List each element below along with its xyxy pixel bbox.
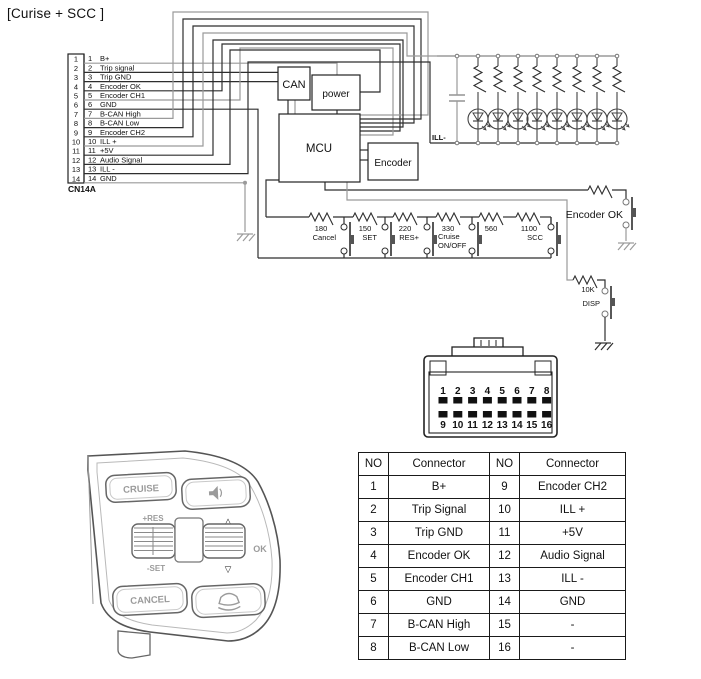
wire bbox=[612, 190, 626, 199]
up-down-thumbwheel bbox=[203, 524, 245, 558]
cruise-button-label: CRUISE bbox=[123, 483, 159, 496]
table-row: 8B-CAN Low16- bbox=[359, 637, 626, 660]
led-branch bbox=[468, 56, 490, 143]
table-cell: 6 bbox=[359, 591, 389, 614]
connector-pin-number: 9 bbox=[440, 420, 446, 431]
diagram-shape bbox=[624, 243, 630, 250]
connector-pin bbox=[527, 397, 536, 404]
table-header: Connector bbox=[389, 453, 490, 476]
terminal bbox=[623, 222, 629, 228]
led-branch bbox=[488, 56, 510, 143]
table-cell: 4 bbox=[359, 545, 389, 568]
table-cell: 1 bbox=[359, 476, 389, 499]
terminal bbox=[615, 141, 619, 145]
pin-row-label: 5Encoder CH1 bbox=[88, 91, 145, 100]
harness-connector-illustration: 19210311412513614715816 bbox=[424, 338, 557, 437]
diagram-text: 150 bbox=[359, 224, 372, 233]
steering-switch-illustration: CRUISE +RES △ OK -SET ▽ bbox=[55, 442, 355, 679]
diagram-shape bbox=[607, 343, 613, 350]
wire bbox=[84, 183, 245, 232]
diagram-text: 9 bbox=[74, 128, 78, 137]
diagram-text: 7 bbox=[74, 110, 78, 119]
diagram-shape bbox=[601, 343, 607, 350]
audio-mode-button bbox=[181, 476, 250, 510]
pin-row-label: 13ILL - bbox=[88, 165, 115, 174]
pin-row-label: 2Trip signal bbox=[88, 63, 135, 72]
button-nub bbox=[433, 235, 437, 244]
table-cell: 3 bbox=[359, 522, 389, 545]
diagram-text: Cancel bbox=[313, 233, 337, 242]
connector-pin-number: 1 bbox=[440, 386, 446, 397]
diagram-shape bbox=[243, 234, 249, 241]
resistor bbox=[514, 66, 526, 92]
table-cell: 7 bbox=[359, 614, 389, 637]
terminal bbox=[516, 54, 520, 58]
connector-pin bbox=[483, 397, 492, 404]
table-cell: Trip GND bbox=[389, 522, 490, 545]
led-branch bbox=[527, 56, 549, 143]
resistor bbox=[474, 66, 486, 92]
connector-pin-number: 13 bbox=[497, 420, 509, 431]
terminal bbox=[535, 54, 539, 58]
diagram-text: 6 bbox=[74, 101, 78, 110]
table-row: 7B-CAN High15- bbox=[359, 614, 626, 637]
table-cell: B-CAN High bbox=[389, 614, 490, 637]
diagram-shape bbox=[618, 243, 624, 250]
diagram-shape bbox=[595, 343, 601, 350]
ground-symbol bbox=[237, 234, 255, 241]
diagram-shape bbox=[249, 234, 255, 241]
ground-symbol bbox=[595, 343, 613, 350]
terminal bbox=[575, 141, 579, 145]
resistor bbox=[573, 66, 585, 92]
connector-pin bbox=[527, 411, 536, 418]
table-cell: GND bbox=[389, 591, 490, 614]
terminal bbox=[548, 224, 554, 230]
diagram-text: 1 bbox=[74, 55, 78, 64]
pin-row-label: 1B+ bbox=[88, 54, 110, 63]
terminal bbox=[382, 248, 388, 254]
power-block: power bbox=[312, 75, 360, 110]
button-nub bbox=[391, 235, 395, 244]
pin-row-label: 9Encoder CH2 bbox=[88, 128, 145, 137]
table-cell: 2 bbox=[359, 499, 389, 522]
terminal bbox=[615, 54, 619, 58]
connector-pin bbox=[439, 397, 448, 404]
terminal bbox=[424, 224, 430, 230]
table-cell: 13 bbox=[490, 568, 520, 591]
diagram-text: 180 bbox=[315, 224, 328, 233]
table-cell: 10 bbox=[490, 499, 520, 522]
diagram-text: 560 bbox=[485, 224, 498, 233]
terminal bbox=[424, 248, 430, 254]
led-branch bbox=[547, 56, 569, 143]
connector-pin bbox=[542, 411, 551, 418]
connector-pin bbox=[513, 411, 522, 418]
led-branch bbox=[587, 56, 609, 143]
table-row: 5Encoder CH113ILL - bbox=[359, 568, 626, 591]
res-set-thumbwheel bbox=[132, 524, 175, 558]
schematic-page: [Curise + SCC ] 11B+22Trip signal33Trip … bbox=[0, 0, 701, 679]
can-label: CAN bbox=[282, 79, 305, 91]
table-row: 4Encoder OK12Audio Signal bbox=[359, 545, 626, 568]
table-header: Connector bbox=[520, 453, 626, 476]
ill-minus-label: ILL- bbox=[432, 133, 446, 142]
button-nub bbox=[350, 235, 354, 244]
terminal bbox=[455, 54, 459, 58]
res-label: +RES bbox=[142, 514, 164, 523]
table-cell: B-CAN Low bbox=[389, 637, 490, 660]
diagram-text: 10 bbox=[72, 138, 80, 147]
connector-pin-number: 8 bbox=[544, 386, 550, 397]
wire bbox=[84, 12, 428, 118]
cruise-button: CRUISE bbox=[105, 472, 176, 503]
connector-pin bbox=[453, 397, 462, 404]
can-block: CAN bbox=[278, 67, 310, 100]
table-cell: GND bbox=[520, 591, 626, 614]
table-cell: 12 bbox=[490, 545, 520, 568]
connector-pin-number: 12 bbox=[482, 420, 494, 431]
terminal bbox=[535, 141, 539, 145]
table-cell: 5 bbox=[359, 568, 389, 591]
diagram-text: Cruise bbox=[438, 232, 460, 241]
connector-pin bbox=[513, 397, 522, 404]
center-knob bbox=[175, 518, 203, 562]
disp-switch-label: DISP bbox=[582, 299, 600, 308]
button-nub bbox=[557, 235, 561, 244]
table-cell: ILL + bbox=[520, 499, 626, 522]
table-cell: 15 bbox=[490, 614, 520, 637]
connector-pin bbox=[439, 411, 448, 418]
pin-row-label: 6GND bbox=[88, 100, 117, 109]
ground-symbol bbox=[618, 243, 636, 250]
connector-pin-number: 16 bbox=[541, 420, 553, 431]
connector-pin-number: 10 bbox=[452, 420, 464, 431]
led-branch bbox=[567, 56, 589, 143]
wire bbox=[266, 180, 279, 217]
table-row: 6GND14GND bbox=[359, 591, 626, 614]
encoder-label: Encoder bbox=[374, 158, 412, 169]
table-cell: Encoder CH2 bbox=[520, 476, 626, 499]
pin-row-label: 4Encoder OK bbox=[88, 82, 141, 91]
button-nub bbox=[632, 208, 636, 217]
table-cell: Audio Signal bbox=[520, 545, 626, 568]
terminal bbox=[555, 141, 559, 145]
ok-label: OK bbox=[253, 544, 267, 554]
scc-distance-button bbox=[191, 583, 266, 618]
table-header: NO bbox=[359, 453, 389, 476]
terminal bbox=[476, 54, 480, 58]
encoder-block: Encoder bbox=[368, 143, 418, 180]
down-arrow: ▽ bbox=[225, 564, 232, 574]
mcu-block: MCU bbox=[279, 114, 360, 182]
table-row: 3Trip GND11+5V bbox=[359, 522, 626, 545]
terminal bbox=[496, 54, 500, 58]
connector-pin-number: 6 bbox=[514, 386, 520, 397]
terminal bbox=[382, 224, 388, 230]
connector-pin bbox=[542, 397, 551, 404]
pin-row-label: 14GND bbox=[88, 174, 117, 183]
terminal bbox=[469, 248, 475, 254]
diagram-text: 14 bbox=[72, 174, 80, 183]
diagram-text: SET bbox=[362, 233, 377, 242]
junction bbox=[243, 181, 247, 185]
table-row: 2Trip Signal10ILL + bbox=[359, 499, 626, 522]
connector-pin bbox=[453, 411, 462, 418]
connector-pin bbox=[468, 397, 477, 404]
led-branch bbox=[607, 56, 629, 143]
pin-row-label: 12Audio Signal bbox=[88, 155, 142, 164]
diagram-text: 2 bbox=[74, 64, 78, 73]
terminal bbox=[341, 248, 347, 254]
terminal bbox=[602, 311, 608, 317]
diagram-text: 220 bbox=[399, 224, 412, 233]
connector-pin bbox=[498, 411, 507, 418]
diagram-text: 3 bbox=[74, 73, 78, 82]
resistor bbox=[613, 66, 625, 92]
r10k-label: 10K bbox=[581, 285, 594, 294]
table-row: 1B+9Encoder CH2 bbox=[359, 476, 626, 499]
button-nub bbox=[611, 298, 615, 306]
connector-pin-number: 14 bbox=[511, 420, 523, 431]
pin-row-label: 8B-CAN Low bbox=[88, 119, 140, 128]
table-cell: 16 bbox=[490, 637, 520, 660]
cancel-button: CANCEL bbox=[112, 583, 187, 616]
connector-pin-number: 4 bbox=[485, 386, 491, 397]
set-label: -SET bbox=[147, 564, 165, 573]
terminal bbox=[469, 224, 475, 230]
diagram-shape bbox=[630, 243, 636, 250]
diagram-text: 13 bbox=[72, 165, 80, 174]
pin-row-label: 11+5V bbox=[88, 146, 114, 155]
resistor bbox=[494, 66, 506, 92]
diagram-text: 12 bbox=[72, 156, 80, 165]
wire bbox=[347, 182, 573, 280]
connector-pin-number: 15 bbox=[526, 420, 538, 431]
connector-pin-number: 11 bbox=[467, 420, 478, 431]
table-cell: ILL - bbox=[520, 568, 626, 591]
table-cell: - bbox=[520, 637, 626, 660]
wire bbox=[597, 280, 605, 288]
resistor bbox=[588, 186, 612, 198]
table-cell: - bbox=[520, 614, 626, 637]
diagram-shape bbox=[237, 234, 243, 241]
terminal bbox=[516, 141, 520, 145]
connector-pin bbox=[468, 411, 477, 418]
terminal bbox=[496, 141, 500, 145]
terminal bbox=[476, 141, 480, 145]
power-label: power bbox=[322, 89, 350, 100]
pin-row-label: 7B-CAN High bbox=[88, 109, 141, 118]
mcu-label: MCU bbox=[306, 143, 332, 155]
terminal bbox=[595, 141, 599, 145]
diagram-text: 5 bbox=[74, 92, 78, 101]
pin-row-label: 3Trip GND bbox=[88, 73, 132, 82]
diagram-text: 11 bbox=[72, 147, 80, 156]
terminal bbox=[623, 199, 629, 205]
resistor bbox=[533, 66, 545, 92]
terminal bbox=[595, 54, 599, 58]
connector-pin bbox=[483, 411, 492, 418]
diagram-text: SCC bbox=[527, 233, 543, 242]
table-cell: Trip Signal bbox=[389, 499, 490, 522]
terminal bbox=[602, 288, 608, 294]
cancel-button-label: CANCEL bbox=[130, 594, 170, 607]
terminal bbox=[548, 248, 554, 254]
connector-pin-number: 2 bbox=[455, 386, 461, 397]
button-nub bbox=[478, 235, 482, 244]
connector-pin-number: 3 bbox=[470, 386, 476, 397]
terminal bbox=[455, 141, 459, 145]
terminal bbox=[575, 54, 579, 58]
diagram-text: 4 bbox=[74, 82, 78, 91]
table-cell: Encoder OK bbox=[389, 545, 490, 568]
resistor bbox=[553, 66, 565, 92]
diagram-text: 8 bbox=[74, 119, 78, 128]
pin-row-label: 10ILL + bbox=[88, 137, 117, 146]
diagram-text: ON/OFF bbox=[438, 241, 467, 250]
connector-pin-number: 5 bbox=[499, 386, 505, 397]
diagram-text: 1100 bbox=[521, 224, 537, 233]
connector-pin bbox=[498, 397, 507, 404]
table-cell: 8 bbox=[359, 637, 389, 660]
connector-pin-table: NOConnectorNOConnector1B+9Encoder CH22Tr… bbox=[358, 452, 626, 660]
resistor bbox=[593, 66, 605, 92]
connector-pin-number: 7 bbox=[529, 386, 535, 397]
encoder-ok-switch-label: Encoder OK bbox=[566, 209, 623, 221]
terminal bbox=[555, 54, 559, 58]
wire bbox=[325, 182, 588, 190]
table-cell: +5V bbox=[520, 522, 626, 545]
diagram-text: RES+ bbox=[399, 233, 419, 242]
circuit-diagram: 11B+22Trip signal33Trip GND44Encoder OK5… bbox=[0, 0, 701, 452]
table-cell: 9 bbox=[490, 476, 520, 499]
table-cell: 11 bbox=[490, 522, 520, 545]
terminal bbox=[341, 224, 347, 230]
pod-tab bbox=[118, 631, 150, 658]
table-cell: Encoder CH1 bbox=[389, 568, 490, 591]
led-branch bbox=[508, 56, 530, 143]
table-cell: B+ bbox=[389, 476, 490, 499]
cn14a-label: CN14A bbox=[68, 184, 96, 194]
table-cell: 14 bbox=[490, 591, 520, 614]
table-header: NO bbox=[490, 453, 520, 476]
